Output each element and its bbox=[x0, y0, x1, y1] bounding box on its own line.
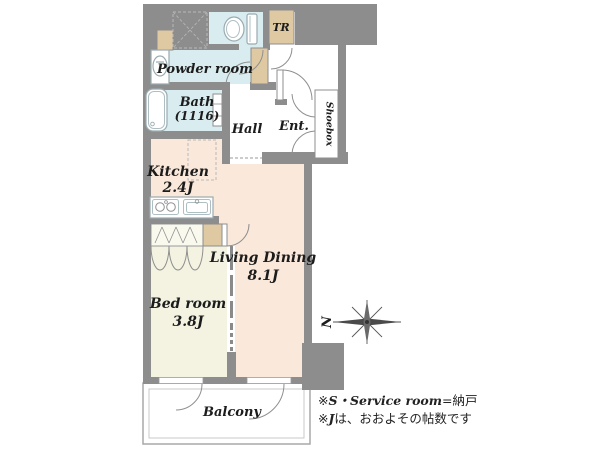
bedroom-label: Bed room bbox=[149, 296, 226, 312]
shoebox-door-lower bbox=[292, 131, 315, 154]
footnote-jou: ※Jは、おおよその帖数です bbox=[318, 411, 472, 426]
bathtub-icon bbox=[146, 89, 167, 131]
footnotes: ※S・Service room=納戸 ※Jは、おおよその帖数です bbox=[318, 393, 477, 426]
shoebox-label: Shoebox bbox=[324, 102, 335, 147]
trunk-room-label: TR bbox=[272, 21, 289, 34]
column-box bbox=[203, 224, 222, 246]
compass-rose: N bbox=[320, 300, 401, 344]
floor-plan: N TR Powder room Bath (1116) Hall Ent. S… bbox=[0, 0, 600, 450]
bath-size-label: (1116) bbox=[175, 109, 220, 123]
entrance-door-leaf bbox=[277, 70, 283, 100]
footnote-service-room: ※S・Service room=納戸 bbox=[318, 393, 477, 408]
ld-door-leaf bbox=[222, 224, 227, 246]
trunk-door-arc bbox=[271, 48, 292, 69]
kitchen-label: Kitchen bbox=[146, 164, 209, 180]
kitchen-counter bbox=[150, 197, 213, 218]
living-dining-size-label: 8.1J bbox=[248, 268, 280, 284]
pipe-space bbox=[251, 48, 268, 84]
compass-north-label: N bbox=[320, 315, 335, 329]
balcony-label: Balcony bbox=[202, 405, 262, 420]
entrance-label: Ent. bbox=[278, 119, 309, 134]
bath-label: Bath bbox=[179, 95, 215, 110]
powder-room-label: Powder room bbox=[156, 62, 253, 77]
bedroom-size-label: 3.8J bbox=[173, 314, 205, 330]
kitchen-size-label: 2.4J bbox=[162, 180, 195, 196]
hall-label: Hall bbox=[231, 122, 263, 137]
living-dining-label: Living Dining bbox=[209, 250, 317, 266]
duct-box bbox=[157, 30, 173, 50]
entrance-door-arc bbox=[283, 70, 312, 100]
